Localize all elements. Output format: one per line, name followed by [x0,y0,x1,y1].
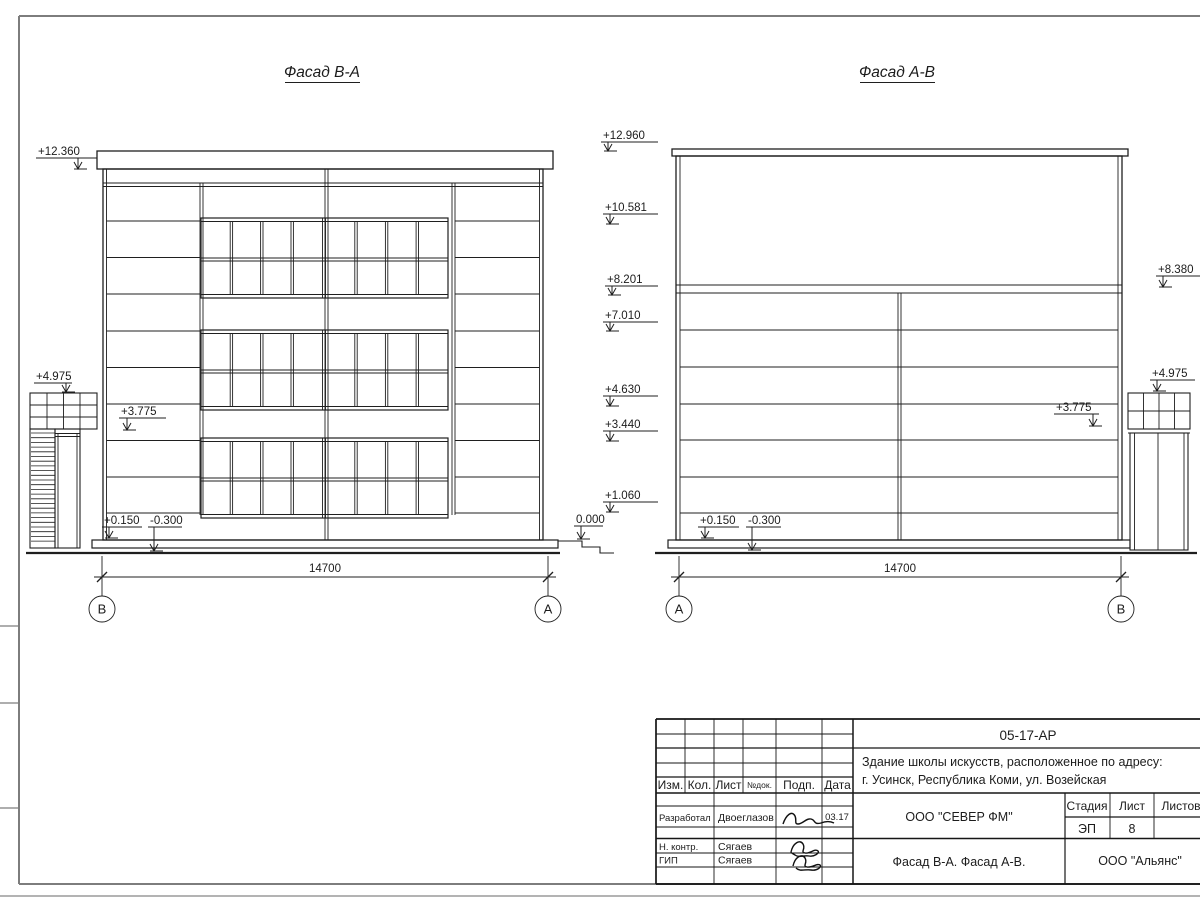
project-address-line1: Здание школы искусств, расположенное по … [862,755,1163,769]
dimension-left: 14700 В А [89,556,561,622]
drawing-canvas: Фасад В-А [0,0,1200,900]
elevation-mark: +4.630 [605,384,641,396]
dimension-value: 14700 [309,563,341,575]
list-value: 8 [1129,822,1136,836]
dimension-value: 14700 [884,563,916,575]
curb-steps [558,541,614,553]
listov-label: Листов [1162,799,1200,813]
doc-number: 05-17-АР [999,728,1056,743]
elevation-mark: -0.300 [748,515,781,527]
elevation-mark: +10.581 [605,202,647,214]
stage-value: ЭП [1078,822,1096,836]
elevation-mark: +8.380 [1158,264,1194,276]
sheet-caption: Фасад В-А. Фасад А-В. [893,855,1026,869]
col-izm: Изм. [658,778,684,792]
dimension-right: 14700 А В [666,556,1134,622]
elevation-mark: +12.360 [38,146,80,158]
axis-marker: А [544,602,553,617]
elevation-mark: +0.150 [700,515,736,527]
elevation-mark: 0.000 [576,514,605,526]
generated-linework: +12.360+4.975+3.775+0.150-0.3000.000+12.… [31,130,1200,551]
elevation-mark: +0.150 [104,515,140,527]
elevation-mark: +8.201 [607,274,643,286]
drawing-sheet: Фасад В-А [0,0,1200,900]
designer-company: ООО "СЕВЕР ФМ" [905,810,1012,824]
elevation-mark: +1.060 [605,490,641,502]
row-name: Двоеглазов [718,812,774,824]
stair-block-right [1128,393,1190,550]
signature-scribbles [783,813,834,870]
elevation-mark: +3.775 [121,406,157,418]
list-label: Лист [1119,799,1146,813]
elevation-mark: +3.440 [605,419,641,431]
row-role: ГИП [659,856,678,867]
axis-marker: В [1117,602,1126,617]
col-list: Лист [715,778,742,792]
col-podp: Подп. [783,778,815,792]
elevation-mark: +7.010 [605,310,641,322]
facade-a-b-title: Фасад А-В [859,64,935,81]
stage-label: Стадия [1067,799,1108,813]
project-address-line2: г. Усинск, Республика Коми, ул. Возейска… [862,773,1106,787]
elevation-mark: +12.960 [603,130,645,142]
row-role: Разработал [659,813,711,824]
elevation-mark: +3.775 [1056,402,1092,414]
col-data: Дата [824,778,851,792]
facade-b-a: Фасад В-А [26,64,614,553]
row-name: Сягаев [718,841,753,853]
col-kol: Кол. [688,778,712,792]
title-block: Изм. Кол. Лист №док. Подп. Дата Разработ… [656,719,1200,884]
axis-marker: А [675,602,684,617]
facade-b-a-title: Фасад В-А [284,64,360,81]
row-name: Сягаев [718,855,753,867]
facade-a-b: Фасад А-В [655,64,1197,553]
elevation-mark: +4.975 [36,371,72,383]
col-ndok: №док. [747,780,772,790]
elevation-mark: -0.300 [150,515,183,527]
row-role: Н. контр. [659,842,698,853]
contractor-company: ООО "Альянс" [1098,854,1182,868]
axis-marker: В [98,602,107,617]
elevation-mark: +4.975 [1152,368,1188,380]
